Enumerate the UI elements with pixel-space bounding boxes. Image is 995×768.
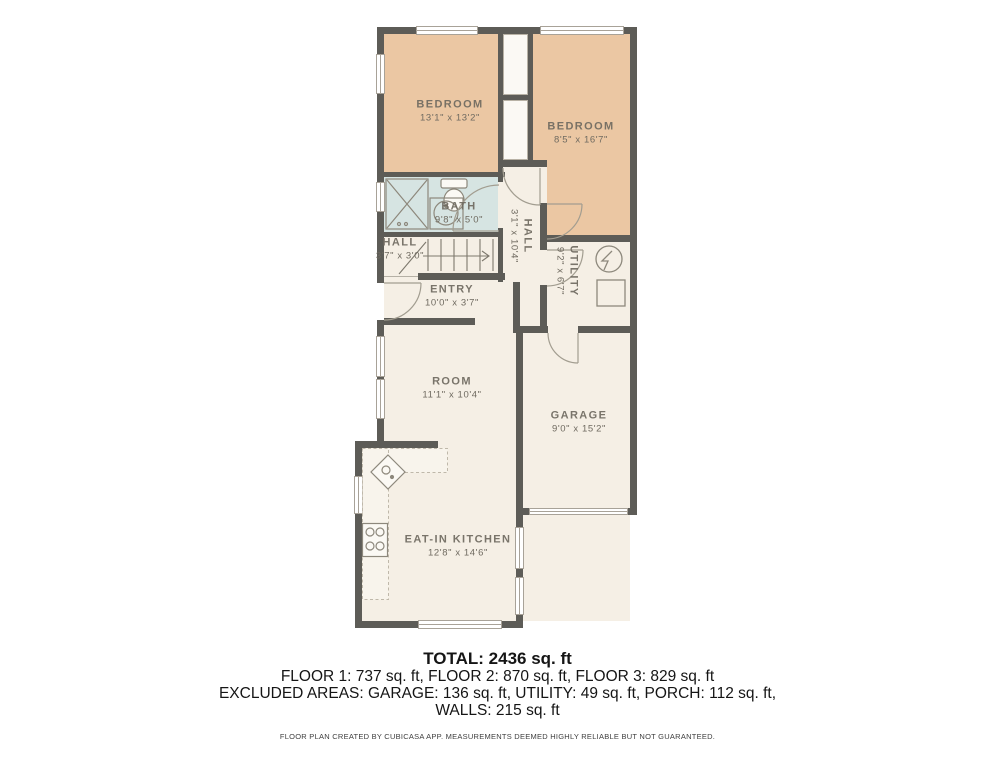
room-name: HALL: [376, 237, 424, 249]
room-label-bath: BATH 9'8" x 5'0": [435, 201, 483, 226]
wall: [630, 27, 637, 515]
room-name: UTILITY: [568, 245, 580, 296]
room-dims: 3'1" x 10'4": [509, 209, 520, 263]
floor-plan-canvas: BEDROOM 13'1" x 13'2" BEDROOM 8'5" x 16'…: [0, 0, 995, 768]
room-label-hall-upper: HALL 3'7" x 3'0": [376, 237, 424, 262]
room-name: BEDROOM: [416, 99, 483, 111]
room-label-room: ROOM 11'1" x 10'4": [422, 376, 481, 401]
room-name: GARAGE: [551, 410, 608, 422]
room-label-bedroom-1: BEDROOM 13'1" x 13'2": [416, 99, 483, 124]
room-dims: 13'1" x 13'2": [416, 113, 483, 124]
room-dims: 9'0" x 15'2": [551, 424, 608, 435]
room-name: EAT-IN KITCHEN: [405, 534, 512, 546]
room-name: ENTRY: [425, 284, 479, 296]
total-area-text: TOTAL: 2436 sq. ft: [0, 649, 995, 668]
room-fill-bedroom-2-lower: [547, 167, 630, 235]
room-dims: 10'0" x 3'7": [425, 298, 479, 309]
room-name: HALL: [522, 209, 534, 263]
garage-door-icon: [529, 508, 628, 515]
window-icon: [376, 54, 385, 94]
disclaimer-text: FLOOR PLAN CREATED BY CUBICASA APP. MEAS…: [0, 732, 995, 741]
window-icon: [376, 336, 385, 377]
room-label-bedroom-2: BEDROOM 8'5" x 16'7": [547, 121, 614, 146]
room-dims: 9'2" x 6'7": [555, 245, 566, 296]
room-dims: 3'7" x 3'0": [376, 251, 424, 262]
room-dims: 11'1" x 10'4": [422, 390, 481, 401]
room-dims: 8'5" x 16'7": [547, 135, 614, 146]
wall: [540, 285, 547, 326]
floor-areas-text: FLOOR 1: 737 sq. ft, FLOOR 2: 870 sq. ft…: [0, 668, 995, 685]
closet: [503, 34, 528, 95]
wall: [377, 172, 505, 177]
wall: [528, 34, 533, 160]
room-label-entry: ENTRY 10'0" x 3'7": [425, 284, 479, 309]
wall: [355, 441, 362, 628]
wall: [540, 203, 547, 250]
wall: [384, 318, 475, 325]
window-icon: [354, 476, 363, 514]
room-label-hall-lower: HALL 3'1" x 10'4": [509, 209, 534, 263]
wall: [578, 326, 637, 333]
window-icon: [515, 527, 524, 569]
window-icon: [376, 379, 385, 419]
room-dims: 12'8" x 14'6": [405, 548, 512, 559]
wall: [498, 167, 503, 182]
room-name: BATH: [435, 201, 483, 213]
wall: [540, 235, 637, 242]
window-icon: [418, 620, 502, 629]
room-fill-bedroom-2: [533, 34, 630, 167]
wall: [503, 95, 528, 100]
wall: [418, 273, 505, 280]
room-dims: 9'8" x 5'0": [435, 215, 483, 226]
floor-area-kitchen: [362, 441, 516, 621]
room-name: ROOM: [422, 376, 481, 388]
window-icon: [376, 182, 385, 212]
wall: [355, 441, 438, 448]
window-icon: [540, 26, 624, 35]
window-icon: [416, 26, 478, 35]
wall: [516, 326, 523, 515]
room-label-utility: UTILITY 9'2" x 6'7": [555, 245, 580, 296]
window-icon: [515, 577, 524, 615]
area-summary: TOTAL: 2436 sq. ft FLOOR 1: 737 sq. ft, …: [0, 649, 995, 741]
room-label-kitchen: EAT-IN KITCHEN 12'8" x 14'6": [405, 534, 512, 559]
room-name: BEDROOM: [547, 121, 614, 133]
walls-area-text: WALLS: 215 sq. ft: [0, 702, 995, 719]
closet: [503, 100, 528, 160]
excluded-areas-text: EXCLUDED AREAS: GARAGE: 136 sq. ft, UTIL…: [0, 685, 995, 702]
room-label-garage: GARAGE 9'0" x 15'2": [551, 410, 608, 435]
wall: [498, 160, 547, 167]
